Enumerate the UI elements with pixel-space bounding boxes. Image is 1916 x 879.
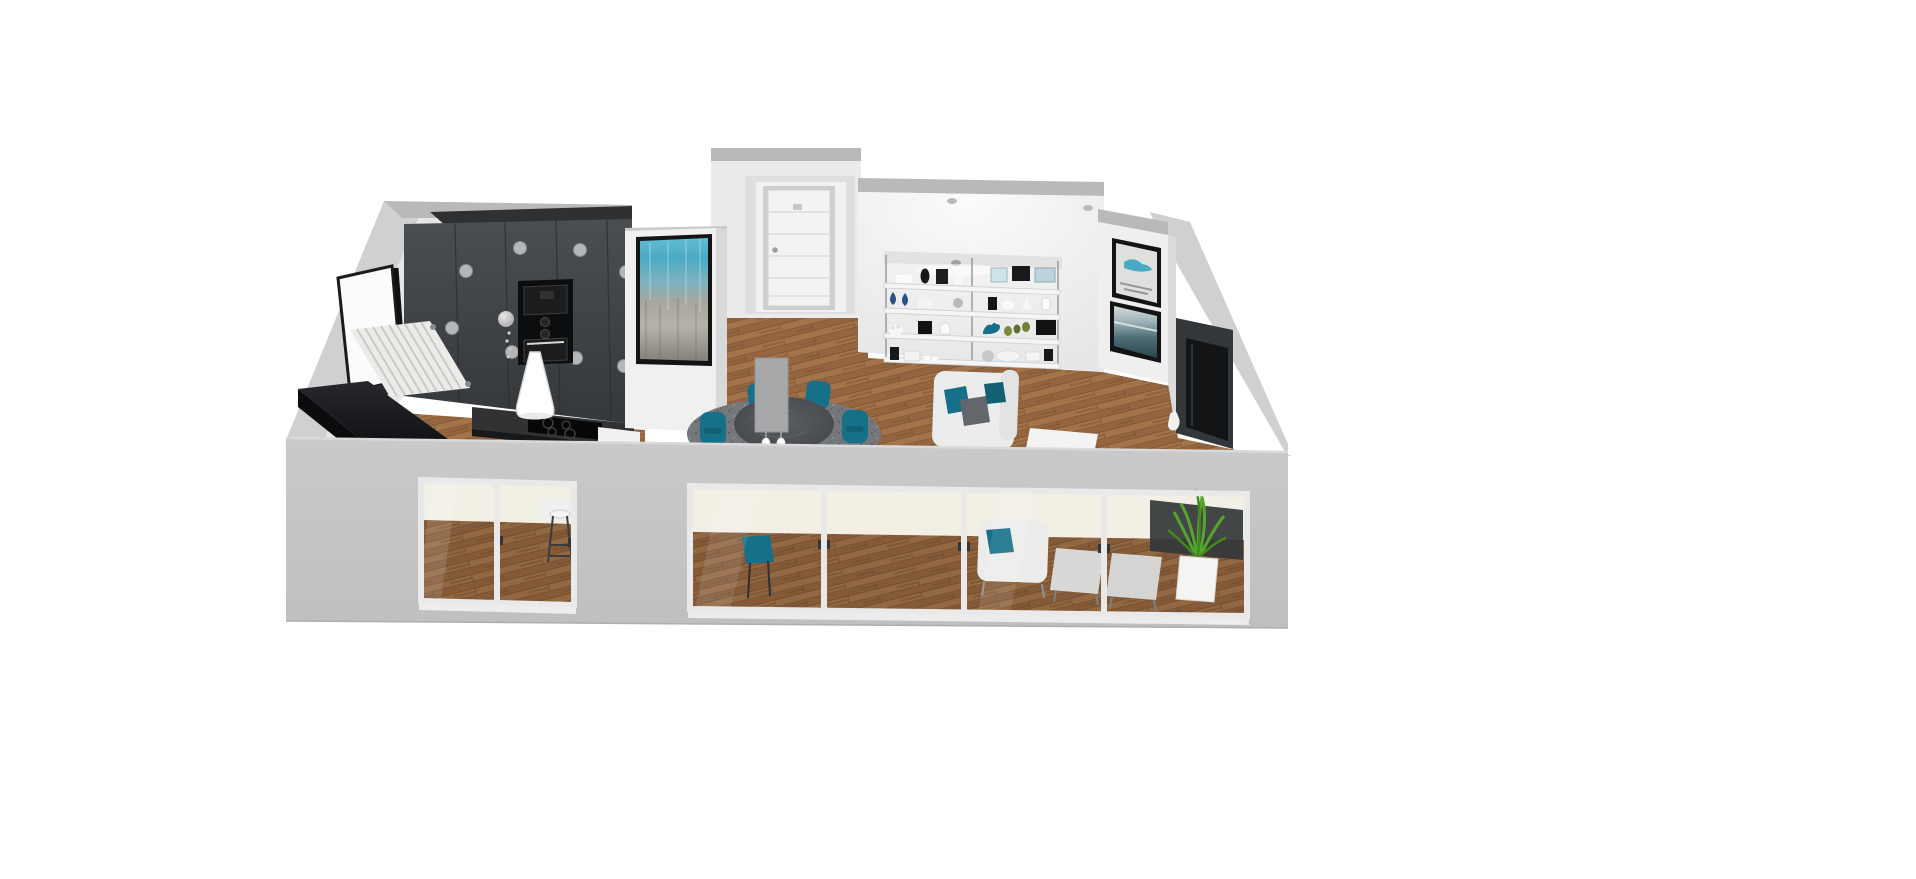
shelf-wall [858, 192, 1104, 372]
ceiling-spot [947, 198, 957, 204]
dining-chair[interactable] [700, 412, 726, 445]
hallway-top-band [711, 148, 861, 161]
sliding-glass-door-left[interactable] [418, 478, 576, 614]
kitchen-partition [625, 226, 727, 433]
oven-tower[interactable] [518, 279, 573, 365]
front-facade [286, 438, 1288, 628]
dining-chair[interactable] [842, 410, 868, 443]
artwork-blue-splash[interactable] [1112, 238, 1161, 308]
planter [1176, 556, 1218, 602]
microwave-oven [524, 285, 567, 315]
sofa[interactable] [932, 370, 1020, 450]
sofa-pillow-teal [984, 382, 1006, 404]
floorplan-scene [0, 0, 1916, 879]
sofa-pillow-gray [960, 396, 990, 426]
sliding-glass-doors-main[interactable] [688, 484, 1249, 625]
interior-door[interactable] [763, 186, 835, 310]
door-handle [772, 247, 778, 253]
media-wall[interactable] [1168, 318, 1233, 449]
artwork-abstract-teal[interactable] [636, 234, 712, 366]
floorplan-canvas[interactable] [0, 0, 1916, 879]
gray-wall-panel[interactable] [755, 358, 788, 432]
ceiling-spot [1083, 205, 1093, 211]
right-partition [1098, 209, 1168, 383]
